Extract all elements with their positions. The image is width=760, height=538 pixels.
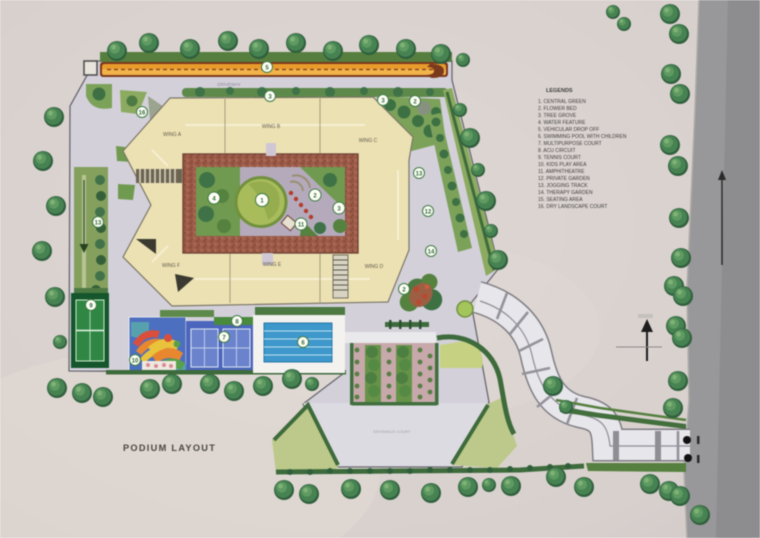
svg-text:5. VEHICULAR DROP OFF: 5. VEHICULAR DROP OFF [538,127,599,133]
svg-text:16: 16 [139,111,146,117]
svg-text:6. SWIMMING POOL WITH CHILDREN: 6. SWIMMING POOL WITH CHILDREN [538,134,627,140]
svg-text:1. CENTRAL GREEN: 1. CENTRAL GREEN [538,99,586,105]
svg-text:WING C: WING C [359,138,378,144]
svg-text:9. TENNIS COURT: 9. TENNIS COURT [538,155,581,161]
svg-text:15. SEATING AREA: 15. SEATING AREA [538,197,583,203]
svg-text:DRIVEWAY: DRIVEWAY [217,82,241,87]
svg-text:7. MULTIPURPOSE COURT: 7. MULTIPURPOSE COURT [538,141,602,147]
svg-text:13: 13 [95,221,102,227]
svg-text:13: 13 [416,172,423,178]
svg-text:WING E: WING E [263,262,282,268]
svg-text:8. ACU CIRCUIT: 8. ACU CIRCUIT [538,148,576,154]
svg-text:WING B: WING B [262,124,281,130]
svg-text:3. TREE GROVE: 3. TREE GROVE [538,113,577,119]
svg-text:14. THERAPY GARDEN: 14. THERAPY GARDEN [538,190,593,196]
svg-text:14: 14 [428,250,435,256]
svg-text:10: 10 [132,359,139,365]
svg-text:10. KIDS PLAY AREA: 10. KIDS PLAY AREA [538,162,587,168]
svg-text:ENTRANCE COURT: ENTRANCE COURT [373,429,411,434]
svg-text:WING A: WING A [163,132,182,138]
svg-text:12: 12 [425,210,432,216]
svg-text:WING D: WING D [365,264,384,270]
svg-text:11: 11 [298,223,305,229]
svg-text:11. AMPHITHEATRE: 11. AMPHITHEATRE [538,169,585,175]
svg-text:LEGENDS: LEGENDS [546,88,573,94]
svg-text:2. FLOWER BED: 2. FLOWER BED [538,106,577,112]
svg-text:16. DRY LANDSCAPE COURT: 16. DRY LANDSCAPE COURT [538,204,607,210]
svg-text:12. PRIVATE GARDEN: 12. PRIVATE GARDEN [538,176,590,182]
svg-text:WING F: WING F [162,263,180,269]
svg-text:PODIUM LAYOUT: PODIUM LAYOUT [123,443,216,453]
svg-text:13. JOGGING TRACK: 13. JOGGING TRACK [538,183,588,189]
svg-text:4. WATER FEATURE: 4. WATER FEATURE [538,120,586,126]
